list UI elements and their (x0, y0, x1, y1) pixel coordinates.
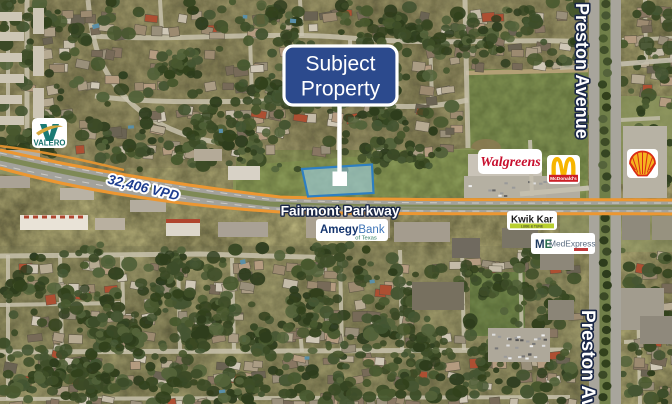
svg-text:LUBE & TUNE: LUBE & TUNE (521, 224, 544, 228)
svg-text:MedExpress: MedExpress (549, 239, 596, 249)
svg-text:VALERO: VALERO (34, 139, 66, 148)
svg-text:Walgreens: Walgreens (480, 155, 541, 170)
svg-text:of Texas: of Texas (355, 236, 377, 242)
svg-text:Preston Avenue: Preston Avenue (572, 3, 592, 139)
svg-text:Property: Property (301, 78, 381, 101)
svg-text:Subject: Subject (305, 53, 375, 76)
svg-text:Preston Avenue: Preston Avenue (577, 310, 598, 404)
svg-text:Fairmont Parkway: Fairmont Parkway (281, 204, 400, 219)
svg-text:McDonald's: McDonald's (550, 176, 577, 182)
svg-text:AmegyBank: AmegyBank (320, 224, 385, 236)
